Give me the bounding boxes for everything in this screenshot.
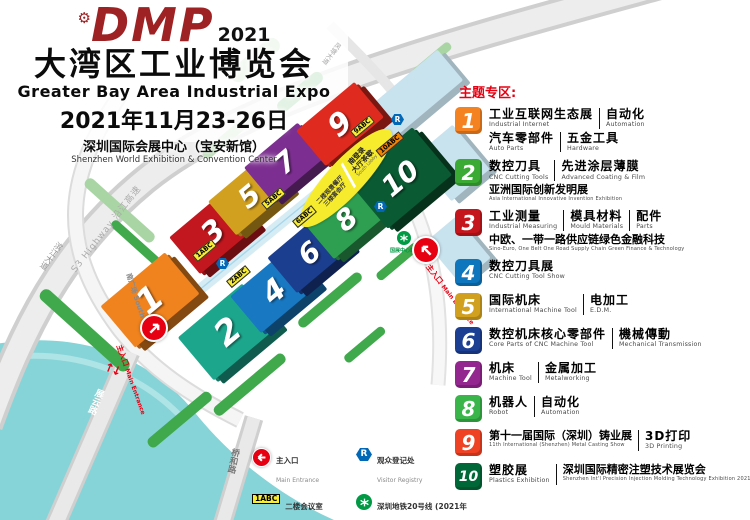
legend-registry-cn: 观众登记处: [377, 456, 415, 465]
theme-segment-cn: 先进涂层薄膜: [561, 160, 645, 173]
theme-segment-en: 11th International (Shenzhen) Metal Cast…: [489, 442, 632, 448]
theme-segment: 機械傳動Mechanical Transmission: [612, 328, 702, 349]
theme-item-9: 9第十一届国际（深圳）铸业展11th International (Shenzh…: [455, 429, 747, 456]
arrow-left-icon: [256, 452, 267, 463]
theme-number-badge: 7: [455, 361, 482, 388]
theme-segment-en: Mould Materials: [570, 223, 623, 231]
theme-row: 数控刀具展CNC Cutting Tool Show: [489, 260, 565, 281]
theme-segment-en: Robot: [489, 409, 528, 417]
theme-segment-en: Metalworking: [545, 375, 597, 383]
theme-segment: 深圳国际精密注塑技术展览会Shenzhen Int'l Precision In…: [556, 464, 750, 485]
theme-segment-cn: 機械傳動: [619, 328, 702, 341]
arrow-nw-icon: [420, 244, 433, 257]
theme-item-rows: 工业测量Industrial Measuring模具材料Mould Materi…: [489, 209, 684, 252]
theme-row: 中欧、一带一路供应链绿色金融科技Sino-Euro, One Belt One …: [489, 234, 684, 252]
theme-item-rows: 机床Machine Tool金属加工Metalworking: [489, 361, 597, 383]
theme-segment-en: Asia International Innovative Invention …: [489, 196, 622, 202]
theme-segment: 模具材料Mould Materials: [563, 210, 623, 231]
date-line: 2021年11月23-26日: [6, 103, 342, 135]
registry-legend-icon: R: [356, 448, 372, 461]
theme-item-3: 3工业测量Industrial Measuring模具材料Mould Mater…: [455, 209, 747, 252]
venue-en: Shenzhen World Exhibition & Convention C…: [6, 155, 342, 165]
theme-row: 工业测量Industrial Measuring模具材料Mould Materi…: [489, 210, 684, 231]
theme-segment-cn: 汽车零部件: [489, 132, 554, 145]
theme-segment-en: Mechanical Transmission: [619, 341, 702, 349]
theme-segment: 汽车零部件Auto Parts: [489, 132, 554, 153]
theme-segment-en: Auto Parts: [489, 145, 554, 153]
theme-item-rows: 国际机床International Machine Tool电加工E.D.M.: [489, 293, 629, 315]
theme-segment-en: Industrial Measuring: [489, 223, 557, 231]
theme-segment-cn: 模具材料: [570, 210, 623, 223]
theme-segment: 第十一届国际（深圳）铸业展11th International (Shenzhe…: [489, 430, 632, 451]
theme-segment-cn: 机床: [489, 362, 532, 375]
theme-segment-cn: 工业测量: [489, 210, 557, 223]
theme-segment-en: Automation: [606, 121, 645, 129]
theme-segment: 亚洲国际创新发明展Asia International Innovative I…: [489, 184, 622, 202]
theme-segment-cn: 中欧、一带一路供应链绿色金融科技: [489, 234, 684, 246]
legend-meeting-cn: 二楼会议室: [285, 502, 323, 511]
theme-segment-en: Advanced Coating & Film: [561, 174, 645, 182]
theme-number-badge: 9: [455, 429, 482, 456]
theme-segment-cn: 金属加工: [545, 362, 597, 375]
theme-item-rows: 工业互联网生态展Industrial Internet自动化Automation…: [489, 107, 645, 152]
legend-metro: 深圳地铁20号线 (2021年底开通) Shenzhen Metro Line …: [356, 494, 471, 520]
venue-cn: 深圳国际会展中心（宝安新馆）: [6, 136, 342, 155]
expo-map-poster: 12345678910 1ABC2ABC5ABC6ABC9ABC10ABC R …: [0, 0, 750, 520]
theme-legend-items: 1工业互联网生态展Industrial Internet自动化Automatio…: [455, 107, 747, 490]
theme-item-rows: 机器人Robot自动化Automation: [489, 395, 580, 417]
theme-segment: 机器人Robot: [489, 396, 528, 417]
theme-segment-cn: 工业互联网生态展: [489, 108, 593, 121]
theme-legend-heading: 主题专区:: [459, 82, 747, 101]
theme-segment: 数控刀具展CNC Cutting Tool Show: [489, 260, 565, 281]
legend-main-entrance-en: Main Entrance: [276, 477, 319, 484]
theme-segment-cn: 数控刀具展: [489, 260, 565, 273]
theme-segment: 金属加工Metalworking: [538, 362, 597, 383]
theme-segment-en: Shenzhen Int'l Precision Injection Moldi…: [563, 476, 750, 482]
theme-item-rows: 数控机床核心零部件Core Parts of CNC Machine Tool機…: [489, 327, 702, 349]
theme-segment: 塑胶展Plastics Exhibition: [489, 464, 550, 485]
theme-segment-cn: 塑胶展: [489, 464, 550, 477]
main-entrance-south-icon: [140, 314, 168, 342]
logo: ⚙DMP2021: [6, 2, 342, 48]
legend-meeting-room: 1ABC 二楼会议室 2/F, Meeting Room: [252, 494, 352, 520]
theme-number-badge: 3: [455, 209, 482, 236]
legend-registry-en: Visitor Registry: [377, 477, 422, 484]
theme-segment-en: CNC Cutting Tools: [489, 174, 548, 182]
theme-item-rows: 数控刀具CNC Cutting Tools先进涂层薄膜Advanced Coat…: [489, 159, 645, 202]
theme-segment: 工业互联网生态展Industrial Internet: [489, 108, 593, 129]
theme-segment: 机床Machine Tool: [489, 362, 532, 383]
theme-row: 第十一届国际（深圳）铸业展11th International (Shenzhe…: [489, 430, 691, 451]
theme-number-badge: 6: [455, 327, 482, 354]
theme-number-badge: 10: [455, 463, 482, 490]
theme-segment-en: Parts: [636, 223, 662, 231]
theme-segment-cn: 自动化: [541, 396, 580, 409]
logo-year: 2021: [218, 24, 271, 46]
theme-item-5: 5国际机床International Machine Tool电加工E.D.M.: [455, 293, 747, 320]
theme-number-badge: 2: [455, 159, 482, 186]
theme-item-rows: 塑胶展Plastics Exhibition深圳国际精密注塑技术展览会Shenz…: [489, 463, 750, 485]
theme-number-badge: 4: [455, 259, 482, 286]
theme-segment-cn: 国际机床: [489, 294, 577, 307]
theme-segment: 中欧、一带一路供应链绿色金融科技Sino-Euro, One Belt One …: [489, 234, 684, 252]
theme-segment-cn: 五金工具: [567, 132, 619, 145]
arrow-ne-icon: [148, 322, 161, 335]
theme-segment-cn: 数控机床核心零部件: [489, 328, 606, 341]
theme-segment: 自动化Automation: [599, 108, 645, 129]
theme-item-10: 10塑胶展Plastics Exhibition深圳国际精密注塑技术展览会She…: [455, 463, 747, 490]
legend-registry: R 观众登记处 Visitor Registry: [356, 448, 471, 486]
title-cn: 大湾区工业博览会: [6, 48, 342, 82]
theme-segment-cn: 亚洲国际创新发明展: [489, 184, 622, 196]
theme-item-1: 1工业互联网生态展Industrial Internet自动化Automatio…: [455, 107, 747, 152]
theme-item-6: 6数控机床核心零部件Core Parts of CNC Machine Tool…: [455, 327, 747, 354]
theme-segment-cn: 自动化: [606, 108, 645, 121]
main-entrance-legend-icon: [252, 448, 271, 467]
legend-main-entrance-cn: 主入口: [276, 456, 299, 465]
theme-segment-en: Industrial Internet: [489, 121, 593, 129]
metro-legend-icon: [356, 494, 372, 510]
theme-segment: 工业测量Industrial Measuring: [489, 210, 557, 231]
theme-number-badge: 5: [455, 293, 482, 320]
theme-segment-en: E.D.M.: [590, 307, 629, 315]
theme-segment: 国际机床International Machine Tool: [489, 294, 577, 315]
theme-segment-en: International Machine Tool: [489, 307, 577, 315]
metro-icon: [397, 231, 411, 245]
theme-segment-en: Sino-Euro, One Belt One Road Supply Chai…: [489, 246, 684, 252]
theme-segment-en: 3D Printing: [645, 443, 691, 451]
theme-segment-cn: 深圳国际精密注塑技术展览会: [563, 464, 750, 476]
theme-segment: 3D打印3D Printing: [638, 430, 691, 451]
theme-row: 塑胶展Plastics Exhibition深圳国际精密注塑技术展览会Shenz…: [489, 464, 750, 485]
theme-row: 国际机床International Machine Tool电加工E.D.M.: [489, 294, 629, 315]
theme-segment: 数控刀具CNC Cutting Tools: [489, 160, 548, 181]
theme-segment-en: CNC Cutting Tool Show: [489, 273, 565, 281]
theme-row: 数控刀具CNC Cutting Tools先进涂层薄膜Advanced Coat…: [489, 160, 645, 181]
theme-segment-cn: 电加工: [590, 294, 629, 307]
theme-number-badge: 1: [455, 107, 482, 134]
theme-segment-en: Automation: [541, 409, 580, 417]
theme-segment: 电加工E.D.M.: [583, 294, 629, 315]
theme-segment: 五金工具Hardware: [560, 132, 619, 153]
hall-number: 2: [206, 309, 250, 355]
title-en: Greater Bay Area Industrial Expo: [6, 82, 342, 101]
meeting-room-badge: 1ABC: [252, 494, 280, 504]
theme-segment-cn: 3D打印: [645, 430, 691, 443]
theme-segment-cn: 配件: [636, 210, 662, 223]
theme-number-badge: 8: [455, 395, 482, 422]
theme-segment: 先进涂层薄膜Advanced Coating & Film: [554, 160, 645, 181]
theme-segment-en: Core Parts of CNC Machine Tool: [489, 341, 606, 349]
theme-legend-panel: 主题专区: 1工业互联网生态展Industrial Internet自动化Aut…: [455, 82, 747, 497]
legend-main-entrance: 主入口 Main Entrance: [252, 448, 352, 486]
theme-row: 机床Machine Tool金属加工Metalworking: [489, 362, 597, 383]
theme-row: 机器人Robot自动化Automation: [489, 396, 580, 417]
theme-row: 工业互联网生态展Industrial Internet自动化Automation: [489, 108, 645, 129]
theme-row: 汽车零部件Auto Parts五金工具Hardware: [489, 132, 645, 153]
theme-item-2: 2数控刀具CNC Cutting Tools先进涂层薄膜Advanced Coa…: [455, 159, 747, 202]
theme-segment-cn: 数控刀具: [489, 160, 548, 173]
theme-segment-en: Plastics Exhibition: [489, 477, 550, 485]
theme-item-rows: 第十一届国际（深圳）铸业展11th International (Shenzhe…: [489, 429, 691, 451]
theme-item-4: 4数控刀具展CNC Cutting Tool Show: [455, 259, 747, 286]
theme-row: 数控机床核心零部件Core Parts of CNC Machine Tool機…: [489, 328, 702, 349]
theme-item-7: 7机床Machine Tool金属加工Metalworking: [455, 361, 747, 388]
theme-segment: 配件Parts: [629, 210, 662, 231]
theme-segment-cn: 机器人: [489, 396, 528, 409]
theme-row: 亚洲国际创新发明展Asia International Innovative I…: [489, 184, 645, 202]
main-entrance-east-icon: [412, 236, 440, 264]
theme-segment-en: Hardware: [567, 145, 619, 153]
theme-segment-en: Machine Tool: [489, 375, 532, 383]
theme-segment: 自动化Automation: [534, 396, 580, 417]
theme-item-8: 8机器人Robot自动化Automation: [455, 395, 747, 422]
header: ⚙DMP2021 大湾区工业博览会 Greater Bay Area Indus…: [6, 2, 342, 165]
map-legend: 主入口 Main Entrance R 观众登记处 Visitor Regist…: [252, 448, 467, 520]
theme-segment-cn: 第十一届国际（深圳）铸业展: [489, 430, 632, 442]
legend-metro-cn: 深圳地铁20号线 (2021年底开通): [377, 502, 467, 520]
gear-icon: ⚙: [77, 9, 90, 27]
theme-item-rows: 数控刀具展CNC Cutting Tool Show: [489, 259, 565, 281]
theme-segment: 数控机床核心零部件Core Parts of CNC Machine Tool: [489, 328, 606, 349]
